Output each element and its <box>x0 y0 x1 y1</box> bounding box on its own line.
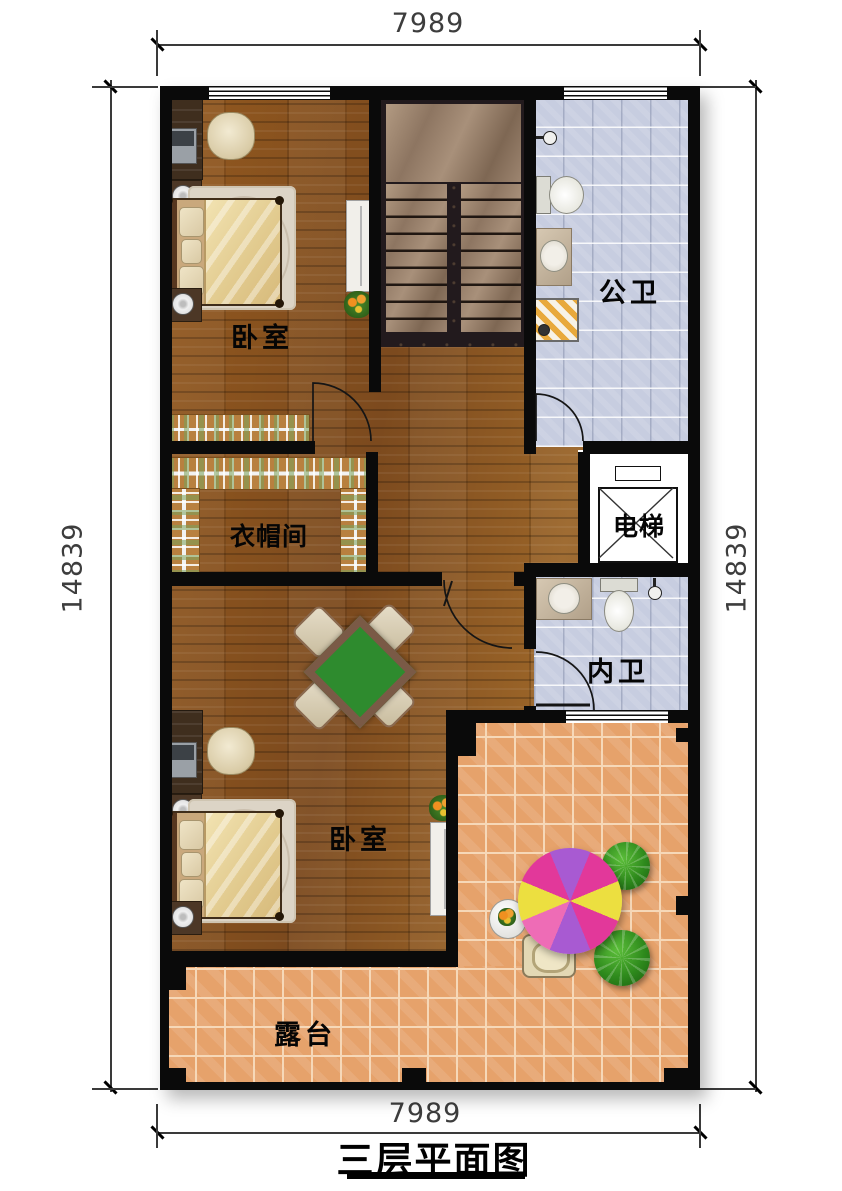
column <box>402 1068 426 1087</box>
flower-pot <box>344 291 372 318</box>
desk-chair <box>207 727 255 775</box>
clothes-rack <box>168 488 200 576</box>
window <box>208 86 332 100</box>
dim-right: 14839 <box>722 524 753 614</box>
column <box>162 1068 186 1087</box>
wall-left <box>160 86 172 968</box>
dim-ext <box>156 30 158 76</box>
drain-knob <box>538 324 550 336</box>
lamp <box>172 293 194 315</box>
laptop <box>169 742 197 778</box>
parasol-umbrella <box>518 848 622 954</box>
wall-bedroom-east <box>446 710 458 966</box>
wall-stair-right <box>524 98 536 454</box>
floor-plan-canvas: 7989 7989 14839 14839 <box>0 0 842 1191</box>
lamp <box>172 906 194 928</box>
wall-stair-left <box>369 98 381 392</box>
stair-divider <box>447 184 461 332</box>
label-cloakroom: 衣帽间 <box>209 517 329 553</box>
patio-flowers <box>498 908 516 926</box>
stair-flight-right <box>461 184 521 332</box>
clothes-rack <box>168 457 370 490</box>
window <box>565 710 670 723</box>
label-public-bath: 公卫 <box>570 271 690 310</box>
label-terrace: 露台 <box>245 1013 365 1052</box>
column <box>676 896 692 915</box>
sink-basin <box>548 583 580 614</box>
parapet-bottom <box>160 1082 700 1090</box>
label-elevator: 电梯 <box>589 507 689 543</box>
wall-bath2-south <box>668 710 700 723</box>
toilet-bowl <box>549 176 584 214</box>
dim-bottom: 7989 <box>365 1098 485 1129</box>
column <box>160 962 186 990</box>
dim-ext <box>92 1088 158 1090</box>
dim-ext <box>700 86 756 88</box>
wall-bath2-left <box>524 577 536 649</box>
wall-right <box>688 86 700 1090</box>
label-bedroom-bottom: 卧室 <box>300 818 420 857</box>
dim-ext <box>699 1104 701 1148</box>
label-bedroom-top: 卧室 <box>202 316 322 355</box>
sink-basin <box>540 240 568 272</box>
wall-bedroom2-south <box>160 951 458 967</box>
desk-chair <box>207 112 255 160</box>
toilet-bowl <box>604 590 634 632</box>
dim-left-line <box>110 80 112 1092</box>
dim-top-line <box>157 44 700 46</box>
dim-right-line <box>755 80 757 1092</box>
wall-bedroom-south <box>160 441 315 454</box>
dim-ext <box>700 1088 756 1090</box>
elevator-door <box>615 466 661 481</box>
label-private-bath: 内卫 <box>558 650 678 689</box>
dim-left: 14839 <box>58 524 89 614</box>
column <box>676 728 692 742</box>
shower-knob <box>648 586 662 600</box>
dim-ext <box>699 30 701 76</box>
dim-ext <box>92 86 158 88</box>
stair-flight-left <box>386 184 447 332</box>
wall-cloak-east <box>366 452 378 584</box>
wall-bath-south <box>583 441 700 454</box>
title-underline <box>347 1172 525 1179</box>
wall-elevator-bottom <box>524 563 700 577</box>
stair-landing <box>386 104 521 182</box>
dim-ext <box>156 1104 158 1148</box>
shower-knob <box>543 131 557 145</box>
dim-top: 7989 <box>368 8 488 39</box>
column <box>664 1068 688 1087</box>
laptop <box>169 128 197 164</box>
wall-cloak-south <box>160 572 442 586</box>
window <box>563 86 669 100</box>
